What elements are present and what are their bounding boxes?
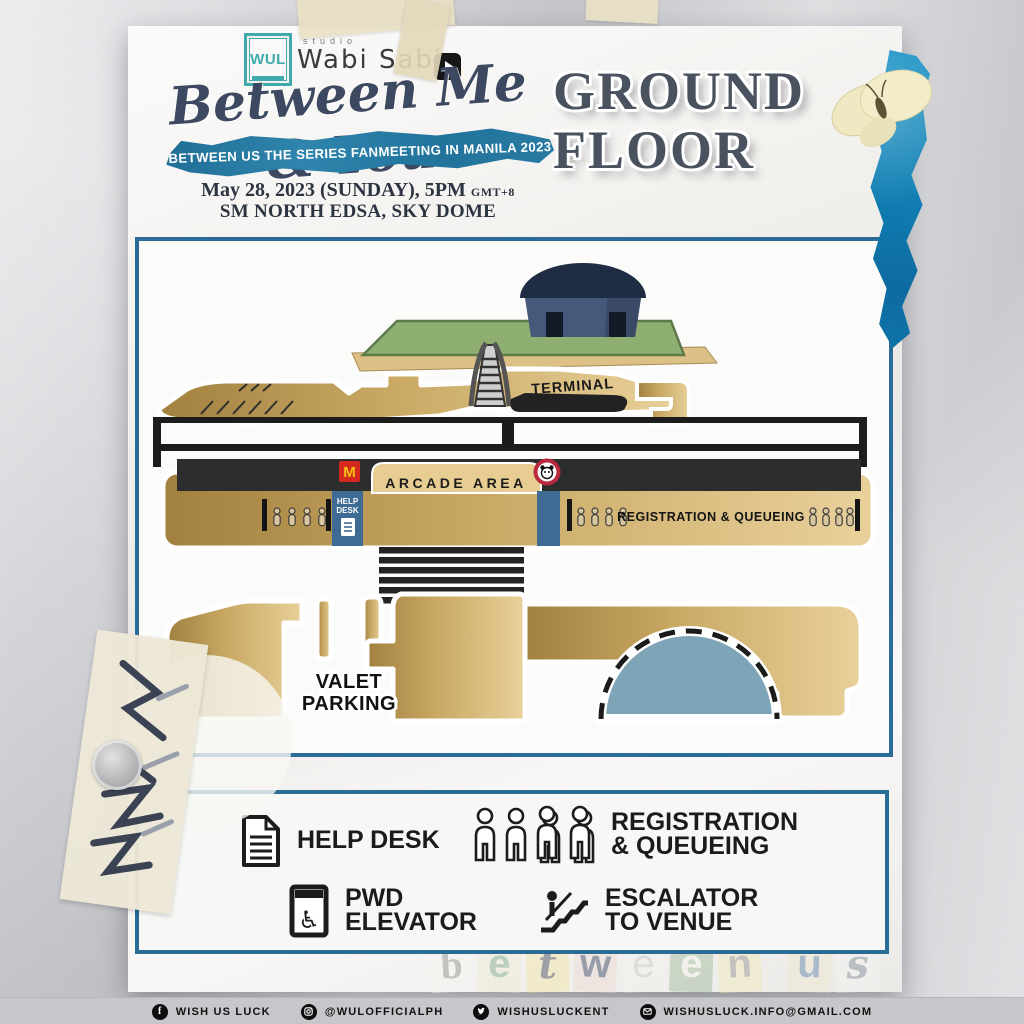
facebook-label: WISH US LUCK (176, 1006, 271, 1018)
butterfly-decoration (826, 48, 936, 163)
valet-left-finger (317, 599, 331, 659)
svg-text:♿: ♿ (298, 906, 320, 934)
legend-registration-line2: & QUEUEING (611, 835, 798, 859)
instagram-icon (301, 1004, 317, 1020)
poster-canvas: WUL studio Wabi Sabi Between Me & You BE… (0, 0, 1024, 1024)
mcdonalds-icon: M (339, 461, 360, 482)
event-date-text: May 28, 2023 (SUNDAY), 5PM (201, 179, 466, 201)
pwd-elevator-station (537, 491, 560, 546)
footer-email: WISHUSLUCK.INFO@GMAIL.COM (640, 1004, 873, 1020)
legend-pwd-elevator: ♿ PWD ELEVATOR (289, 884, 477, 938)
dome-door-left (546, 312, 563, 337)
coin-sticker (92, 740, 142, 790)
dome-door-right (609, 312, 626, 337)
floor-title-line1: GROUND (553, 62, 805, 121)
arcade-area-label: ARCADE AREA (385, 475, 526, 491)
twitter-icon (473, 1004, 489, 1020)
email-icon (640, 1004, 656, 1020)
legend-help-desk-label: HELP DESK (297, 829, 440, 853)
arcade-band: ARCADE AREA M (163, 459, 873, 549)
legend-registration-label: REGISTRATION & QUEUEING (611, 811, 798, 859)
footer-twitter: WISHUSLUCKENT (473, 1004, 609, 1020)
svg-text:HELP: HELP (337, 497, 359, 506)
panda-express-icon (534, 459, 561, 486)
event-datetime-block: May 28, 2023 (SUNDAY), 5PM GMT+8 SM NORT… (177, 179, 539, 223)
registration-queueing-label: REGISTRATION & QUEUEING (617, 510, 805, 524)
document-icon (239, 814, 283, 868)
svg-text:M: M (343, 464, 356, 481)
sky-dome-roof (520, 263, 646, 298)
terminal-bay-road (510, 393, 627, 412)
legend-help-desk: HELP DESK (239, 814, 440, 868)
event-timezone: GMT+8 (471, 185, 515, 199)
svg-text:PARKING: PARKING (302, 693, 396, 715)
legend-escalator: ESCALATOR TO VENUE (537, 886, 758, 936)
pwd-elevator-icon: ♿ (289, 884, 331, 938)
twitter-label: WISHUSLUCKENT (497, 1006, 609, 1018)
legend-pwd-line2: ELEVATOR (345, 911, 477, 935)
legend-escalator-line2: TO VENUE (605, 911, 758, 935)
event-venue: SM NORTH EDSA, SKY DOME (177, 201, 539, 223)
washi-tape-top-right (585, 0, 658, 24)
terminal-building-illustration: TERMINAL (159, 263, 717, 425)
footer-facebook: f WISH US LUCK (152, 1004, 271, 1020)
social-footer-bar: f WISH US LUCK @WULOFFICIALPH WISHUSLUCK… (0, 997, 1024, 1024)
legend-pwd-label: PWD ELEVATOR (345, 887, 477, 935)
floor-title: GROUND FLOOR (553, 62, 805, 180)
svg-text:DESK: DESK (336, 506, 358, 515)
event-date: May 28, 2023 (SUNDAY), 5PM GMT+8 (177, 179, 539, 202)
facebook-icon: f (152, 1004, 168, 1020)
escalator-icon (537, 886, 591, 936)
people-queue-icon (469, 804, 597, 866)
legend-registration: REGISTRATION & QUEUEING (469, 804, 798, 866)
email-label: WISHUSLUCK.INFO@GMAIL.COM (664, 1006, 873, 1018)
legend-escalator-label: ESCALATOR TO VENUE (605, 887, 758, 935)
footer-instagram: @WULOFFICIALPH (301, 1004, 444, 1020)
floor-title-line2: FLOOR (553, 121, 805, 180)
wul-logo-text: WUL (250, 51, 286, 68)
valet-parking-label: VALET PARKING (302, 671, 396, 715)
instagram-label: @WULOFFICIALPH (325, 1006, 444, 1018)
svg-text:VALET: VALET (316, 671, 383, 693)
help-desk-station: HELP DESK (332, 491, 363, 546)
